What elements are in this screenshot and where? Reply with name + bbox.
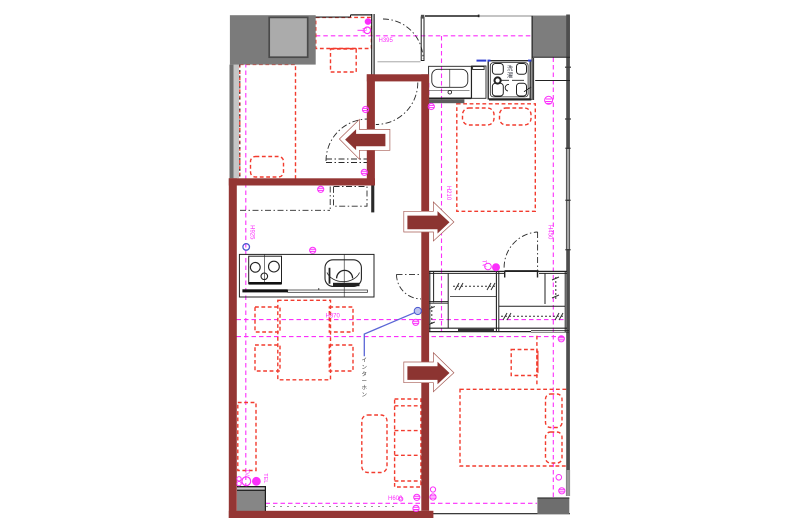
svg-text:ホ: ホ [362,385,368,392]
svg-text:TV: TV [243,469,249,476]
svg-text:TEL: TEL [262,473,268,483]
svg-text:ン: ン [362,365,368,371]
svg-text:H370: H370 [326,314,341,320]
svg-text:TV: TV [360,27,366,34]
svg-text:タ: タ [362,370,368,378]
svg-text:H925: H925 [248,225,254,240]
svg-text:H210: H210 [445,186,451,201]
svg-text:H600: H600 [388,496,403,502]
svg-text:ー: ー [362,379,368,385]
svg-text:TV: TV [481,260,487,267]
svg-text:ン: ン [362,393,368,399]
svg-text:H450: H450 [546,225,552,240]
svg-text:H395: H395 [379,38,394,44]
svg-text:イ: イ [362,358,368,364]
svg-text:濯: 濯 [507,72,513,80]
svg-text:洗: 洗 [507,65,513,73]
